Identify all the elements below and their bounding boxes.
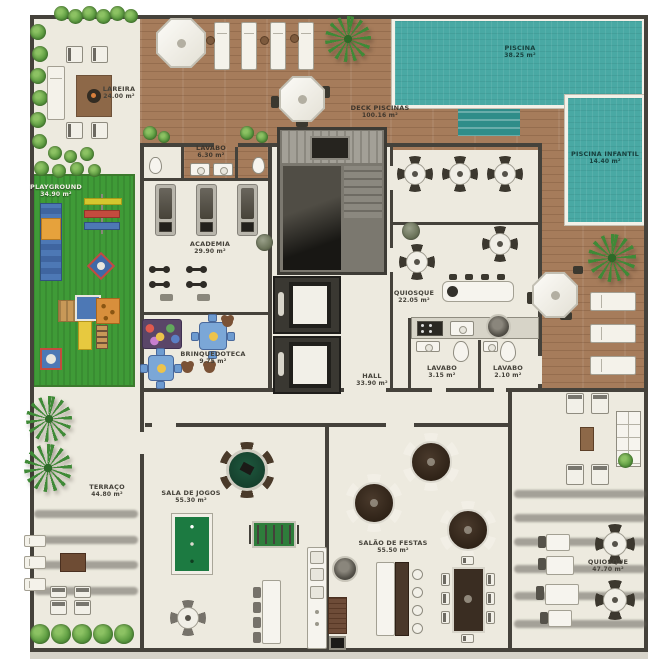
room-label-piscina-infantil: PISCINA INFANTIL 14.40 m² [571, 150, 639, 166]
stool [253, 602, 261, 613]
room-name: ACADEMIA [190, 240, 230, 248]
room-name: LAVABO [427, 364, 457, 372]
hedge-bush-icon [124, 9, 138, 23]
door-gap [432, 388, 446, 392]
sun-lounger [590, 356, 636, 375]
bench [540, 612, 548, 624]
grill-icon [332, 556, 358, 582]
room-label-brinquedoteca: BRINQUEDOTECA 9.75 m² [180, 350, 245, 366]
room-label-lavabo-deck: LAVABO 6.30 m² [196, 144, 226, 160]
round-table [177, 607, 199, 629]
stool [497, 274, 505, 280]
room-name: BRINQUEDOTECA [180, 350, 245, 358]
round-table [603, 588, 627, 612]
armchair [591, 393, 609, 414]
burner [429, 330, 432, 333]
floor-plan: LAREIRA 24.00 m² DECK PISCINAS 100.16 m²… [0, 0, 665, 665]
armchair [66, 122, 83, 139]
deck-chair [271, 96, 279, 108]
round-table [449, 163, 471, 185]
table [60, 553, 86, 572]
toilet-icon [252, 157, 265, 174]
wall [140, 178, 271, 181]
hedge-bush-icon [48, 146, 62, 160]
grill-icon [486, 314, 511, 339]
hedge-bush-icon [80, 147, 94, 161]
room-area: 9.75 m² [180, 358, 245, 366]
gym-bench [197, 294, 210, 301]
stool [412, 605, 423, 616]
bush-icon [51, 624, 71, 644]
elevator-door [278, 352, 284, 376]
room-label-lareira: LAREIRA 24.00 m² [103, 85, 135, 101]
room-area: 6.30 m² [196, 152, 226, 160]
kids-chair [140, 364, 148, 373]
seesaw-bar [84, 222, 120, 230]
play-mat [142, 319, 182, 349]
kids-game-table-top [46, 354, 56, 364]
bush-icon [158, 131, 170, 143]
picnic-table [545, 584, 579, 605]
hedge-bush-icon [30, 24, 46, 40]
wall [235, 145, 238, 178]
bench [24, 535, 46, 547]
sink-icon [483, 341, 498, 352]
hedge-bush-icon [34, 161, 49, 176]
room-area: 55.30 m² [161, 497, 220, 505]
chair [441, 573, 450, 586]
door-gap [344, 388, 386, 392]
armchair [591, 464, 609, 485]
room-area: 44.80 m² [89, 491, 125, 499]
sun-lounger [241, 22, 257, 70]
toilet-icon [453, 341, 469, 362]
pergola-beam [34, 510, 138, 518]
hedge-bush-icon [30, 68, 46, 84]
stool [481, 274, 489, 280]
room-name: LAREIRA [103, 85, 135, 93]
side-table [206, 36, 215, 45]
armchair [66, 46, 83, 63]
room-area: 55.50 m² [359, 547, 428, 555]
round-table [410, 441, 452, 483]
foosball-table [252, 521, 296, 548]
treadmill-icon [155, 184, 176, 236]
chair [461, 634, 474, 643]
stool [253, 632, 261, 643]
sun-lounger [590, 324, 636, 343]
potted-plant-icon [402, 222, 420, 240]
bench [24, 578, 46, 591]
potted-plant-icon [618, 453, 633, 468]
picnic-table [546, 534, 570, 551]
room-area: 100.16 m² [351, 112, 410, 120]
chair [50, 600, 67, 615]
room-label-playground: PLAYGROUND 34.90 m² [30, 183, 82, 199]
treadmill-icon [237, 184, 258, 236]
hedge-bush-icon [32, 90, 48, 106]
dumbbell-icon [189, 268, 204, 271]
bush-icon [72, 624, 92, 644]
stair-lower-flight [283, 166, 341, 270]
room-name: HALL [362, 372, 382, 380]
armchair [566, 393, 584, 414]
pergola-beam [514, 514, 646, 522]
burner [421, 330, 424, 333]
room-area: 14.40 m² [571, 158, 639, 166]
sofa [47, 66, 65, 120]
hedge-bush-icon [110, 6, 125, 21]
chair [74, 586, 91, 598]
room-area: 3.15 m² [427, 372, 457, 380]
round-table [489, 233, 511, 255]
door-gap [494, 388, 506, 392]
pergola-beam [34, 561, 138, 569]
appliance [310, 551, 324, 564]
burner [421, 324, 424, 327]
burner [429, 324, 432, 327]
hedge-bush-icon [54, 6, 69, 21]
teddy-bear-icon [222, 316, 233, 327]
chair [461, 556, 474, 565]
hedge-bush-icon [32, 134, 47, 149]
room-label-terraco: TERRAÇO 44.80 m² [89, 483, 125, 499]
bush-icon [256, 131, 268, 143]
stool [253, 587, 261, 598]
coffee-table [580, 427, 594, 451]
pergola-beam [514, 490, 646, 498]
umbrella-icon [156, 18, 206, 68]
hedge-bush-icon [68, 9, 83, 24]
sink-icon [416, 341, 440, 352]
bush-icon [93, 624, 113, 644]
round-table [353, 482, 395, 524]
umbrella-icon [279, 76, 325, 122]
seesaw-bar [84, 210, 120, 218]
knob [315, 610, 319, 614]
hedge-bush-icon [70, 162, 84, 176]
wall [140, 388, 648, 392]
bench [536, 586, 544, 600]
room-area: 47.70 m² [588, 566, 628, 574]
kids-chair [156, 381, 165, 389]
climbing-wall [96, 298, 120, 324]
chair [486, 611, 495, 624]
door-gap [386, 423, 414, 427]
play-platform [41, 218, 61, 240]
round-table [404, 163, 426, 185]
room-name: SALA DE JOGOS [161, 489, 220, 497]
armchair [91, 46, 108, 63]
room-area: 2.10 m² [493, 372, 523, 380]
room-area: 38.25 m² [504, 52, 536, 60]
billiards-table [172, 514, 212, 574]
oven-icon [329, 636, 346, 650]
wall [140, 312, 271, 315]
stool [412, 569, 423, 580]
door-gap [390, 166, 393, 190]
chair [74, 600, 91, 615]
armchair [566, 464, 584, 485]
bush-icon [240, 126, 254, 140]
game-table-top [97, 262, 105, 270]
wall [181, 145, 184, 178]
room-name: LAVABO [196, 144, 226, 152]
room-area: 24.00 m² [103, 93, 135, 101]
room-label-hall: HALL 33.90 m² [356, 372, 388, 388]
chair [50, 586, 67, 598]
door-gap [140, 432, 144, 454]
room-name: PISCINA INFANTIL [571, 150, 639, 158]
room-area: 22.05 m² [394, 297, 434, 305]
chair [486, 592, 495, 605]
round-table [494, 163, 516, 185]
palm-tree-icon [588, 234, 636, 282]
kids-chair [227, 332, 235, 341]
room-label-academia: ACADEMIA 29.90 m² [190, 240, 230, 256]
chair [486, 573, 495, 586]
hedge-bush-icon [30, 112, 46, 128]
palm-tree-icon [24, 444, 72, 492]
hedge-bush-icon [96, 9, 111, 24]
kids-table [199, 322, 227, 350]
sink-icon [190, 163, 210, 176]
hedge-bush-icon [52, 164, 66, 178]
wall [478, 340, 481, 388]
brick-oven [328, 597, 347, 634]
armchair [91, 122, 108, 139]
sink-icon [450, 321, 474, 336]
island-counter-top [395, 562, 409, 636]
potted-plant-icon [256, 234, 273, 251]
hedge-bush-icon [32, 46, 48, 62]
room-label-quiosque-interno: QUIOSQUE 22.05 m² [394, 289, 434, 305]
palm-tree-icon [26, 396, 72, 442]
deck-chair [573, 266, 583, 274]
room-name: PLAYGROUND [30, 183, 82, 191]
umbrella-icon [532, 272, 578, 318]
ladder [96, 325, 108, 349]
bench [538, 558, 546, 570]
room-area: 29.90 m² [190, 248, 230, 256]
stool [253, 617, 261, 628]
dumbbell-icon [152, 268, 167, 271]
sun-lounger [270, 22, 286, 70]
bush-icon [143, 126, 157, 140]
slide [40, 203, 62, 281]
hedge-bush-icon [82, 6, 97, 21]
round-table [447, 509, 489, 551]
room-label-sala-de-jogos: SALA DE JOGOS 55.30 m² [161, 489, 220, 505]
sun-lounger [590, 292, 636, 311]
toilet-icon [500, 341, 516, 362]
gym-bench [160, 294, 173, 301]
bench [538, 536, 546, 548]
stool [449, 274, 457, 280]
appliance [310, 586, 324, 599]
treadmill-icon [196, 184, 217, 236]
chair [441, 611, 450, 624]
picnic-table [548, 610, 572, 627]
kids-chair [208, 314, 217, 322]
pergola-beam [514, 620, 646, 628]
picnic-table [546, 556, 574, 575]
sun-lounger [298, 22, 314, 70]
centerpiece [464, 595, 472, 603]
room-name: DECK PISCINAS [351, 104, 410, 112]
seesaw-bar [84, 198, 122, 205]
room-name: PISCINA [505, 44, 536, 52]
fire-icon [91, 93, 96, 98]
room-name: QUIOSQUE [394, 289, 434, 297]
room-label-quiosque-externo: QUIOSQUE 47.70 m² [588, 558, 628, 574]
bench [24, 556, 46, 569]
round-table [406, 251, 428, 273]
knob [315, 622, 319, 626]
room-area: 34.90 m² [30, 191, 82, 199]
sink-icon [213, 163, 233, 176]
room-label-deck-piscinas: DECK PISCINAS 100.16 m² [351, 104, 410, 120]
elevator-car [289, 282, 331, 328]
stool [412, 587, 423, 598]
room-label-lavabo-2: LAVABO 2.10 m² [493, 364, 523, 380]
door-gap [152, 423, 176, 427]
room-label-salao-de-festas: SALÃO DE FESTAS 55.50 m² [359, 539, 428, 555]
elevator-car [289, 342, 331, 388]
bush-icon [114, 624, 134, 644]
room-name: SALÃO DE FESTAS [359, 539, 428, 547]
kids-chair [191, 332, 199, 341]
side-table [290, 34, 299, 43]
wall [140, 143, 144, 652]
kettle-icon [447, 286, 458, 297]
kids-table [148, 355, 174, 381]
hedge-bush-icon [88, 164, 101, 177]
room-name: LAVABO [493, 364, 523, 372]
toilet-icon [149, 157, 162, 174]
dumbbell-icon [189, 283, 204, 286]
bar-counter [262, 580, 281, 644]
wall [508, 390, 512, 652]
room-name: TERRAÇO [89, 483, 125, 491]
stool [465, 274, 473, 280]
room-label-lavabo-1: LAVABO 3.15 m² [427, 364, 457, 380]
appliance [310, 568, 324, 581]
exterior-sidewalk [30, 652, 648, 659]
chair [441, 592, 450, 605]
island-counter [376, 562, 395, 636]
round-table [603, 532, 627, 556]
dumbbell-icon [152, 283, 167, 286]
hedge-bush-icon [64, 150, 77, 163]
door-gap [390, 248, 393, 272]
door-gap [538, 356, 542, 384]
palm-tree-icon [325, 16, 371, 62]
room-name: QUIOSQUE [588, 558, 628, 566]
pergola-beam [34, 536, 138, 544]
room-label-piscina: PISCINA 38.25 m² [504, 44, 536, 60]
sun-lounger [214, 22, 230, 70]
side-table [260, 36, 269, 45]
bush-icon [30, 624, 50, 644]
slide [78, 321, 92, 350]
stool [412, 623, 423, 634]
stair-void [310, 136, 350, 160]
room-area: 33.90 m² [356, 380, 388, 388]
stair-treads [344, 166, 382, 218]
wall [538, 143, 542, 392]
elevator-door [278, 292, 284, 316]
